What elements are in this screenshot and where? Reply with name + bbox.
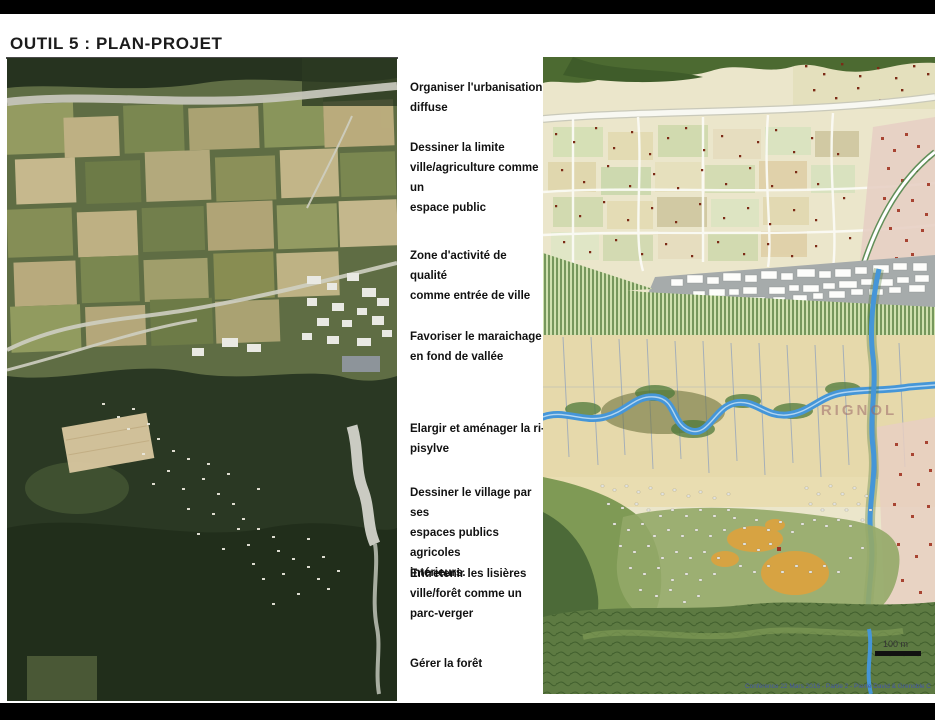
- video-frame: OUTIL 5 : PLAN-PROJET: [0, 0, 935, 720]
- annotation-zone-activite: Zone d'activité de qualité comme entrée …: [410, 246, 546, 306]
- plan-projet-panel: RIGNOL: [543, 57, 935, 694]
- annotation-gerer-foret: Gérer la forêt: [410, 654, 546, 674]
- map-attribution: Conférence 22 Mars 2016 - Partie 2 - Pie…: [745, 683, 931, 690]
- map-scale-label: 100 m: [883, 639, 908, 649]
- aerial-photo-image: [7, 58, 397, 701]
- plan-projet-map: RIGNOL: [543, 57, 935, 694]
- annotation-limite-ville-agriculture: Dessiner la limite ville/agriculture com…: [410, 138, 546, 218]
- photo-bottom-field: [27, 656, 97, 700]
- map-forest-bottom: [543, 602, 935, 694]
- annotation-column: Organiser l'urbanisation diffuse Dessine…: [410, 14, 546, 703]
- slide-title: OUTIL 5 : PLAN-PROJET: [10, 34, 223, 54]
- annotation-urbanisation: Organiser l'urbanisation diffuse: [410, 78, 546, 118]
- photo-forest-topright: [302, 58, 397, 106]
- map-background-place-label: RIGNOL: [821, 402, 897, 419]
- annotation-maraichage: Favoriser le maraichage en fond de vallé…: [410, 327, 546, 367]
- map-scale-bar: [875, 651, 921, 656]
- annotation-lisieres-parc-verger: Entretenir les lisières ville/forêt comm…: [410, 564, 546, 624]
- annotation-ripisylve: Elargir et aménager la ri- pisylve: [410, 419, 546, 459]
- slide: OUTIL 5 : PLAN-PROJET: [0, 14, 935, 703]
- aerial-photo-panel: [7, 58, 397, 701]
- map-landmark: [777, 547, 781, 551]
